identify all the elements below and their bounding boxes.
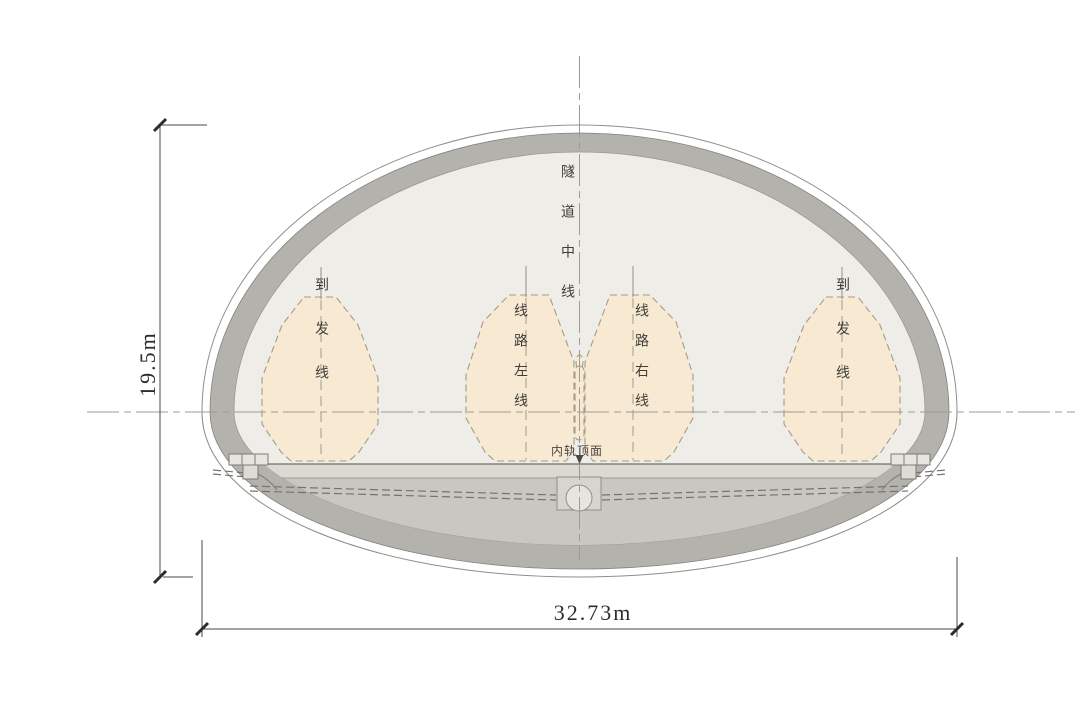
tunnel-cross-section-diagram: 隧道中线 到发线 线路左线 线路右线 到发线 内轨顶面 32.73m 19.5m	[0, 0, 1085, 711]
label-route-left-line: 线路左线	[513, 303, 528, 423]
label-right-arrival-departure: 到发线	[835, 277, 850, 409]
height-dimension-text: 19.5m	[135, 314, 161, 414]
height-dimension	[154, 119, 207, 583]
label-tunnel-centerline: 隧道中线	[560, 164, 575, 324]
width-dimension-text: 32.73m	[543, 600, 643, 626]
label-rail-top-surface: 内轨顶面	[551, 442, 603, 459]
label-left-arrival-departure: 到发线	[314, 277, 329, 409]
label-route-right-line: 线路右线	[634, 303, 649, 423]
